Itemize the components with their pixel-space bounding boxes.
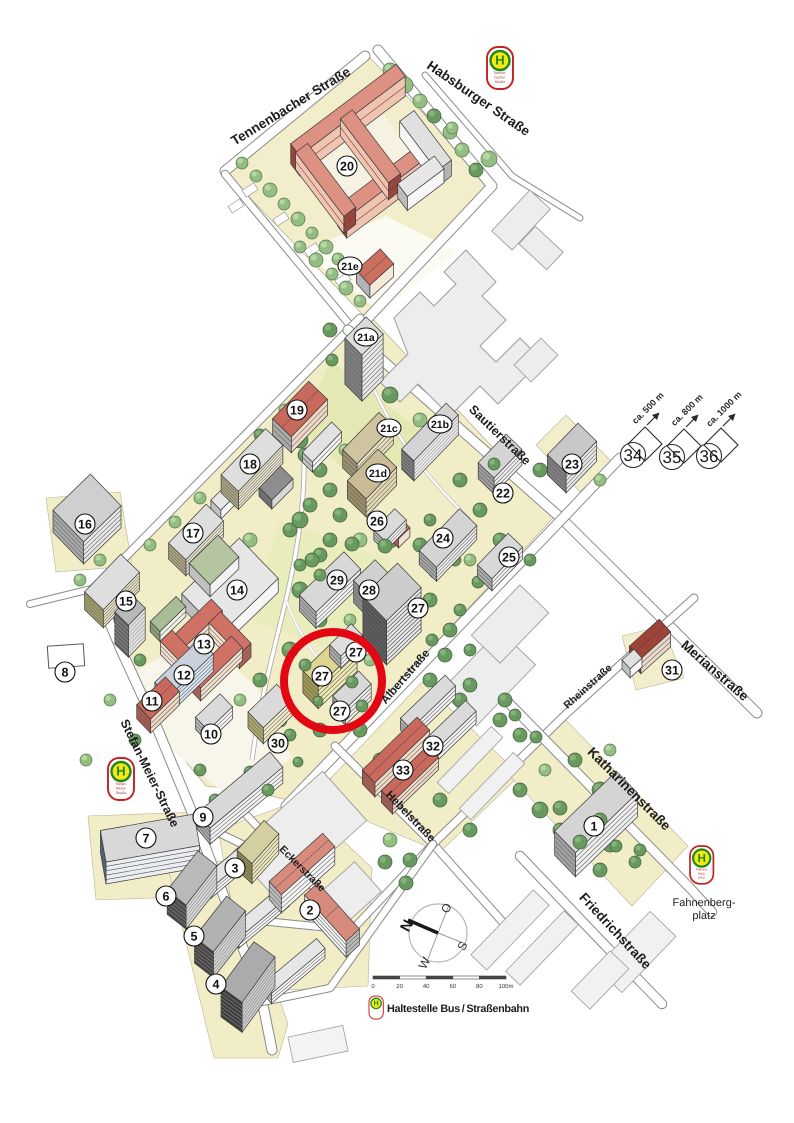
svg-text:13: 13 (197, 638, 211, 652)
svg-text:3: 3 (232, 862, 239, 876)
svg-text:H: H (373, 999, 378, 1008)
svg-text:28: 28 (362, 584, 376, 598)
svg-text:26: 26 (370, 515, 384, 529)
svg-text:21a: 21a (357, 332, 375, 344)
svg-text:Stefan-: Stefan- (115, 782, 127, 786)
svg-text:8: 8 (62, 666, 69, 680)
svg-text:platz: platz (692, 910, 715, 922)
svg-text:H: H (495, 53, 504, 68)
svg-text:20: 20 (340, 160, 354, 174)
svg-text:Straße: Straße (495, 80, 506, 84)
svg-text:40: 40 (423, 983, 430, 990)
svg-text:21b: 21b (431, 419, 449, 431)
svg-text:4: 4 (213, 978, 220, 992)
svg-text:10: 10 (204, 728, 218, 742)
svg-text:2: 2 (307, 904, 314, 918)
svg-text:27: 27 (333, 705, 347, 719)
svg-text:1: 1 (591, 820, 598, 834)
svg-text:100m: 100m (498, 983, 513, 990)
svg-text:33: 33 (396, 764, 410, 778)
svg-text:12: 12 (177, 669, 191, 683)
svg-text:21c: 21c (380, 423, 398, 435)
svg-text:H: H (116, 764, 125, 779)
svg-text:24: 24 (436, 532, 450, 546)
svg-text:Fahnenberg-: Fahnenberg- (673, 897, 736, 909)
svg-text:15: 15 (119, 595, 133, 609)
svg-text:80: 80 (476, 983, 483, 990)
svg-text:Haltestelle Bus / Straßenbahn: Haltestelle Bus / Straßenbahn (387, 1003, 529, 1015)
svg-text:bacher: bacher (495, 76, 507, 80)
svg-text:27: 27 (315, 670, 329, 684)
svg-text:19: 19 (290, 404, 304, 418)
svg-text:34: 34 (624, 446, 643, 465)
svg-text:platz: platz (698, 875, 705, 879)
svg-text:H: H (697, 852, 705, 865)
svg-text:27: 27 (411, 602, 425, 616)
svg-text:17: 17 (186, 527, 200, 541)
svg-text:32: 32 (426, 740, 440, 754)
svg-text:Straße: Straße (116, 791, 127, 795)
svg-text:35: 35 (663, 448, 682, 467)
svg-text:23: 23 (565, 458, 579, 472)
svg-text:36: 36 (700, 447, 719, 466)
svg-text:14: 14 (230, 584, 244, 598)
svg-text:31: 31 (665, 664, 679, 678)
svg-text:20: 20 (396, 983, 403, 990)
svg-text:7: 7 (143, 832, 150, 846)
svg-text:11: 11 (145, 695, 158, 709)
svg-text:18: 18 (243, 458, 257, 472)
svg-text:5: 5 (191, 930, 198, 944)
svg-text:30: 30 (271, 737, 285, 751)
svg-text:22: 22 (496, 487, 510, 501)
svg-text:21d: 21d (369, 468, 387, 480)
svg-text:Meier-: Meier- (116, 787, 127, 791)
svg-text:27: 27 (349, 646, 363, 660)
svg-text:Tennen-: Tennen- (494, 71, 508, 75)
svg-text:6: 6 (163, 890, 170, 904)
svg-text:9: 9 (200, 811, 207, 825)
svg-text:29: 29 (330, 574, 344, 588)
svg-text:25: 25 (502, 551, 516, 565)
svg-text:60: 60 (449, 983, 456, 990)
svg-text:16: 16 (78, 518, 92, 532)
svg-text:21e: 21e (341, 261, 359, 273)
